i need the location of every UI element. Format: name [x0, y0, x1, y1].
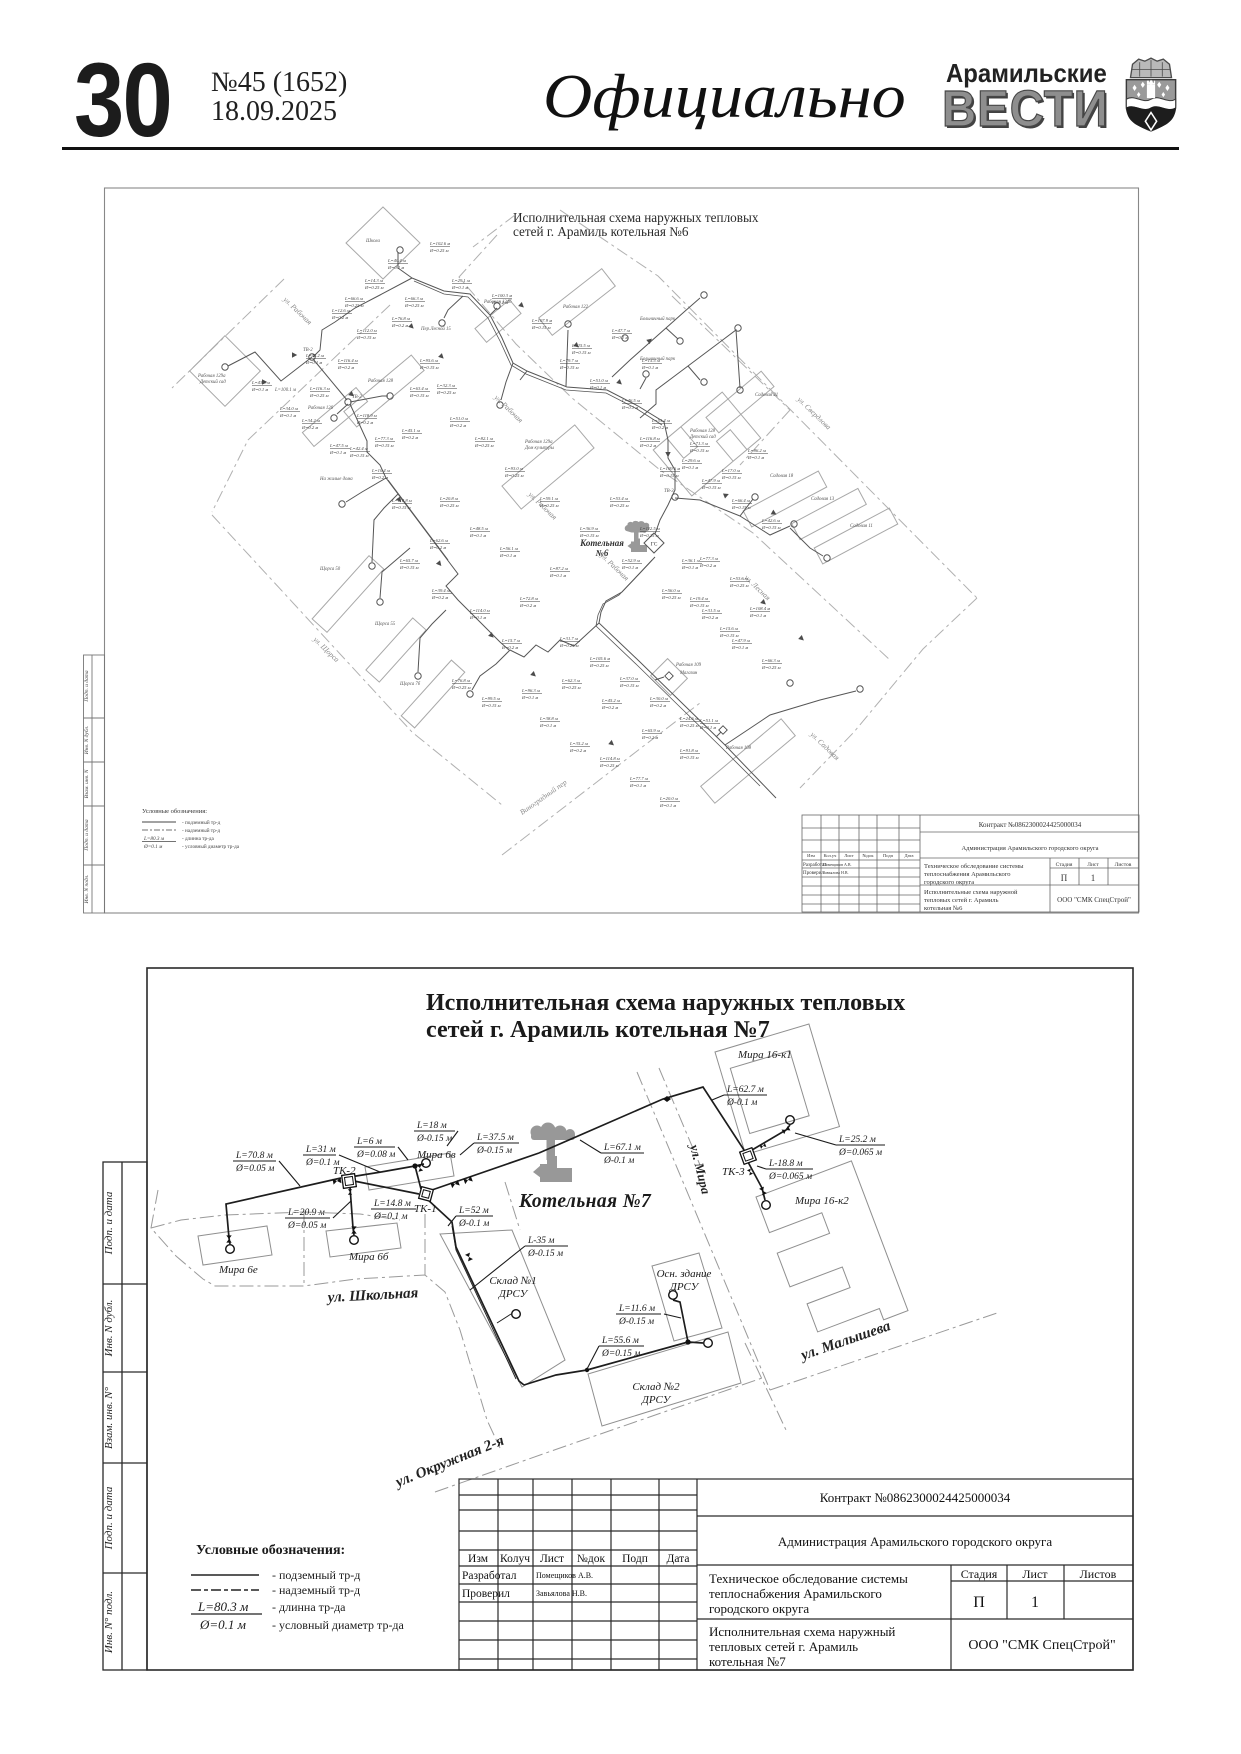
svg-text:Изм: Изм	[807, 853, 815, 858]
svg-text:Ø=0.2 м: Ø=0.2 м	[699, 563, 716, 568]
svg-text:L=77.3 м: L=77.3 м	[374, 436, 393, 441]
svg-text:L=48.5 м: L=48.5 м	[469, 526, 488, 531]
svg-text:L=36.9 м: L=36.9 м	[579, 526, 598, 531]
svg-text:L=99.5 м: L=99.5 м	[481, 696, 500, 701]
svg-text:Инв. N подл.: Инв. N подл.	[83, 875, 90, 905]
svg-text:L=14.3 м: L=14.3 м	[364, 278, 383, 283]
svg-text:котельная №7: котельная №7	[709, 1654, 786, 1669]
svg-text:- условный диаметр тр-да: - условный диаметр тр-да	[272, 1618, 405, 1632]
svg-text:Ø=0.15 м: Ø=0.15 м	[721, 475, 741, 480]
svg-text:L=34.0 м: L=34.0 м	[279, 406, 298, 411]
svg-text:Ø=0.25 м: Ø=0.25 м	[639, 533, 659, 538]
svg-text:Ø=0.25 м: Ø=0.25 м	[609, 503, 629, 508]
svg-text:ТК-2: ТК-2	[333, 1165, 356, 1177]
svg-text:Ø=0.15 м: Ø=0.15 м	[579, 533, 599, 538]
svg-text:Ø=0.15 м: Ø=0.15 м	[601, 1349, 640, 1359]
svg-text:Исполнительная схема наружных: Исполнительная схема наружных тепловых	[426, 990, 905, 1016]
svg-text:L=40.4 м: L=40.4 м	[387, 258, 406, 263]
svg-text:ул. Рабочая: ул. Рабочая	[492, 392, 525, 425]
svg-text:L-35 м: L-35 м	[527, 1236, 554, 1246]
svg-text:Ø=0.2 м: Ø=0.2 м	[651, 425, 668, 430]
svg-text:Ø=0.1 м: Ø=0.1 м	[451, 285, 468, 290]
svg-text:Помещиков А.В.: Помещиков А.В.	[536, 1571, 593, 1580]
svg-text:Ø=0.15 м: Ø=0.15 м	[531, 325, 551, 330]
svg-text:тепловых сетей г. Арамиль: тепловых сетей г. Арамиль	[709, 1639, 858, 1654]
svg-text:Котельная: Котельная	[579, 538, 624, 548]
svg-text:Ø=0.1 м: Ø=0.1 м	[629, 783, 646, 788]
svg-text:L=52 м: L=52 м	[458, 1206, 489, 1216]
svg-text:ТВ-3: ТВ-3	[664, 489, 674, 494]
svg-text:Ø=0.2 м: Ø=0.2 м	[641, 735, 658, 740]
svg-text:L=87.2 м: L=87.2 м	[549, 566, 568, 571]
svg-text:L=10.4 м: L=10.4 м	[371, 468, 390, 473]
svg-text:Ø=0.15 м: Ø=0.15 м	[399, 565, 419, 570]
svg-text:Ø=0.1 м: Ø=0.1 м	[305, 360, 322, 365]
svg-text:ТВ-2: ТВ-2	[352, 395, 362, 400]
svg-text:Изм: Изм	[468, 1553, 489, 1565]
svg-text:Рабочая 124б: Рабочая 124б	[483, 300, 512, 305]
svg-text:Помещиков А.В.: Помещиков А.В.	[823, 862, 852, 867]
svg-text:Детский сад: Детский сад	[199, 379, 226, 385]
svg-text:L=51.4 м: L=51.4 м	[651, 418, 670, 423]
svg-text:Ø=0.2 м: Ø=0.2 м	[501, 645, 518, 650]
svg-text:L=12.6 м: L=12.6 м	[331, 308, 350, 313]
svg-text:Лист: Лист	[844, 853, 853, 858]
svg-text:Ø=0.15 м: Ø=0.15 м	[391, 505, 411, 510]
svg-text:Осн. здание: Осн. здание	[657, 1268, 712, 1280]
svg-text:L=72.8 м: L=72.8 м	[519, 596, 538, 601]
svg-text:- надземный тр-д: - надземный тр-д	[272, 1583, 360, 1597]
svg-text:№док: №док	[577, 1553, 606, 1565]
svg-text:Ø=0.1 м: Ø=0.1 м	[699, 725, 716, 730]
svg-text:L=95.6 м: L=95.6 м	[419, 358, 438, 363]
svg-text:сетей г. Арамиль котельная №7: сетей г. Арамиль котельная №7	[426, 1017, 770, 1043]
svg-text:Ø=0.25 м: Ø=0.25 м	[344, 303, 364, 308]
svg-text:L=11.6 м: L=11.6 м	[618, 1304, 655, 1314]
svg-text:Проверил: Проверил	[462, 1588, 510, 1600]
svg-text:Листов: Листов	[1115, 862, 1132, 868]
svg-text:Ø=0.25 м: Ø=0.25 м	[589, 663, 609, 668]
svg-text:Ø=0.15 м: Ø=0.15 м	[374, 443, 394, 448]
svg-text:L=112.0 м: L=112.0 м	[356, 328, 377, 333]
svg-text:ТК-3: ТК-3	[722, 1166, 745, 1178]
svg-text:Ø=0.2 м: Ø=0.2 м	[429, 545, 446, 550]
svg-text:- подземный тр-д: - подземный тр-д	[182, 819, 221, 826]
svg-text:Инв. N дубл.: Инв. N дубл.	[103, 1300, 115, 1358]
svg-text:Мира 16-к1: Мира 16-к1	[737, 1049, 792, 1061]
svg-text:L=118.9 м: L=118.9 м	[356, 413, 377, 418]
svg-text:ТК-1: ТК-1	[414, 1203, 437, 1215]
svg-text:Ø=0.1 м: Ø=0.1 м	[641, 365, 658, 370]
svg-text:Виноградный пер: Виноградный пер	[518, 777, 569, 816]
svg-text:Ø=0.1 м: Ø=0.1 м	[549, 573, 566, 578]
svg-text:Ø=0.2 м: Ø=0.2 м	[356, 420, 373, 425]
svg-text:П: П	[973, 1594, 985, 1611]
svg-text:Ø=0.25 м: Ø=0.25 м	[539, 503, 559, 508]
svg-text:L=70.8 м: L=70.8 м	[235, 1151, 273, 1161]
svg-text:Ø=0.1 м: Ø=0.1 м	[387, 265, 404, 270]
svg-text:Ø=0.15 м: Ø=0.15 м	[689, 448, 709, 453]
svg-text:Рабочая 128: Рабочая 128	[367, 379, 394, 384]
svg-text:Мира 6в: Мира 6в	[416, 1149, 456, 1161]
svg-text:L-18.8 м: L-18.8 м	[768, 1159, 803, 1169]
svg-text:Контракт №0862300024425000034: Контракт №0862300024425000034	[820, 1490, 1011, 1505]
svg-text:Рабочая 122: Рабочая 122	[562, 305, 589, 310]
svg-text:Ø=0.15 м: Ø=0.15 м	[481, 703, 501, 708]
svg-text:Ø=0.1 м: Ø=0.1 м	[621, 565, 638, 570]
svg-text:Ø=0.2 м: Ø=0.2 м	[371, 475, 388, 480]
svg-text:Рабочая 129а: Рабочая 129а	[197, 374, 226, 379]
svg-text:L=66.4 м: L=66.4 м	[731, 498, 750, 503]
svg-text:L=105.6 м: L=105.6 м	[589, 656, 610, 661]
svg-text:Садовая 18: Садовая 18	[770, 474, 794, 479]
svg-text:Лист: Лист	[540, 1553, 564, 1565]
svg-text:Ø=0.1 м: Ø=0.1 м	[373, 1212, 408, 1222]
svg-text:Ø=0.15 м: Ø=0.15 м	[679, 755, 699, 760]
svg-text:Ø=0.1 м: Ø=0.1 м	[589, 385, 606, 390]
svg-text:Подп: Подп	[622, 1553, 648, 1565]
svg-text:Ø=0.1 м: Ø=0.1 м	[731, 645, 748, 650]
svg-text:Ø=0.25 м: Ø=0.25 м	[429, 248, 449, 253]
svg-text:Ø=0.1 м: Ø=0.1 м	[469, 533, 486, 538]
svg-text:- подземный тр-д: - подземный тр-д	[272, 1568, 360, 1582]
svg-text:L=59.1 м: L=59.1 м	[539, 496, 558, 501]
svg-text:Лист: Лист	[1022, 1567, 1048, 1581]
svg-text:Ø=0.25 м: Ø=0.25 м	[599, 763, 619, 768]
svg-text:Ø=0.1 м: Ø=0.1 м	[469, 615, 486, 620]
svg-text:ул. Мира: ул. Мира	[687, 1141, 714, 1196]
svg-text:Ø=0.05 м: Ø=0.05 м	[287, 1221, 326, 1231]
svg-text:Ø=0.2 м: Ø=0.2 м	[449, 423, 466, 428]
svg-text:L=14.8 м: L=14.8 м	[373, 1199, 411, 1209]
svg-text:L=108.4 м: L=108.4 м	[749, 606, 770, 611]
svg-text:Ø=0.2 м: Ø=0.2 м	[569, 748, 586, 753]
svg-text:Ø=0.15 м: Ø=0.15 м	[571, 350, 591, 355]
svg-text:Листов: Листов	[1080, 1567, 1117, 1581]
svg-text:L=20.9 м: L=20.9 м	[287, 1208, 325, 1218]
svg-text:Ø=0.15 м: Ø=0.15 м	[409, 393, 429, 398]
svg-text:Рабочая 109: Рабочая 109	[675, 663, 702, 668]
svg-text:Условные обозначения:: Условные обозначения:	[142, 808, 207, 815]
svg-text:ООО "СМК СпецСтрой": ООО "СМК СпецСтрой"	[968, 1638, 1115, 1653]
svg-text:Ø-0.15 м: Ø-0.15 м	[416, 1134, 452, 1144]
svg-text:- длинна тр-да: - длинна тр-да	[272, 1600, 346, 1614]
svg-text:Ø=0.15 м: Ø=0.15 м	[659, 473, 679, 478]
svg-text:L=96.3 м: L=96.3 м	[521, 688, 540, 693]
svg-text:L=86.2 м: L=86.2 м	[747, 448, 766, 453]
svg-text:Администрация Арамильского гор: Администрация Арамильского городского ок…	[778, 1534, 1052, 1549]
svg-text:L=25.5 м: L=25.5 м	[571, 343, 590, 348]
svg-text:Ø=0.1 м: Ø=0.1 м	[143, 844, 163, 850]
svg-text:Взам. инв. N: Взам. инв. N	[84, 769, 90, 798]
svg-text:Ø=0.25 м: Ø=0.25 м	[679, 723, 699, 728]
svg-text:ул. Окружная 2-я: ул. Окружная 2-я	[392, 1433, 507, 1492]
svg-text:Взам. инв. N°: Взам. инв. N°	[103, 1386, 115, 1449]
svg-text:ул. Рабочая: ул. Рабочая	[281, 294, 314, 327]
svg-text:ДРСУ: ДРСУ	[641, 1394, 672, 1406]
svg-text:L=35.2 м: L=35.2 м	[569, 741, 588, 746]
svg-text:городского округа: городского округа	[709, 1601, 809, 1616]
svg-text:Ø=0.15 м: Ø=0.15 м	[761, 525, 781, 530]
svg-text:Колуч: Колуч	[500, 1553, 530, 1565]
svg-text:L=63.4 м: L=63.4 м	[409, 386, 428, 391]
svg-text:П: П	[1061, 873, 1068, 883]
svg-text:L=80.3 м: L=80.3 м	[197, 1599, 248, 1614]
svg-text:L=24.6 м: L=24.6 м	[679, 716, 698, 721]
svg-text:Стадия: Стадия	[961, 1567, 998, 1581]
svg-text:Инв. N° подл.: Инв. N° подл.	[103, 1591, 115, 1654]
svg-text:Инв. N дубл.: Инв. N дубл.	[83, 726, 90, 755]
svg-text:L=42.6 м: L=42.6 м	[761, 518, 780, 523]
svg-text:Ø=0.25 м: Ø=0.25 м	[474, 443, 494, 448]
svg-text:L=20.0 м: L=20.0 м	[659, 796, 678, 801]
svg-text:Завьялова Н.В.: Завьялова Н.В.	[823, 870, 849, 875]
svg-text:Ø=0.15 м: Ø=0.15 м	[356, 335, 376, 340]
svg-text:1: 1	[1091, 873, 1096, 883]
svg-text:L=100.1 м: L=100.1 м	[274, 388, 296, 393]
svg-text:Администрация Арамильского гор: Администрация Арамильского городского ок…	[961, 845, 1098, 852]
svg-text:Проверил: Проверил	[803, 871, 824, 876]
svg-text:L=31.7 м: L=31.7 м	[559, 636, 578, 641]
svg-text:L=30.0 м: L=30.0 м	[649, 696, 668, 701]
svg-text:Ø=0.1 м: Ø=0.1 м	[251, 387, 268, 392]
svg-text:Ø=0.065 м: Ø=0.065 м	[838, 1148, 882, 1158]
svg-text:сетей г. Арамиль котельная №6: сетей г. Арамиль котельная №6	[513, 224, 689, 239]
svg-text:Техническое обследование систе: Техническое обследование системы	[924, 863, 1024, 870]
svg-text:L=116.8 м: L=116.8 м	[639, 436, 660, 441]
svg-text:L=116.4 м: L=116.4 м	[337, 358, 358, 363]
svg-text:ГС: ГС	[651, 542, 658, 548]
svg-text:Исполнительные схема наружной: Исполнительные схема наружной	[924, 889, 1018, 896]
svg-text:Ø=0.1 м: Ø=0.1 м	[681, 465, 698, 470]
svg-text:Контракт №0862300024425000034: Контракт №0862300024425000034	[979, 821, 1082, 829]
svg-text:L=112.5 м: L=112.5 м	[639, 526, 660, 531]
svg-text:L=52.9 м: L=52.9 м	[621, 558, 640, 563]
svg-text:L=6 м: L=6 м	[356, 1137, 382, 1147]
svg-text:L=37.5 м: L=37.5 м	[476, 1133, 514, 1143]
svg-text:L=25.2 м: L=25.2 м	[838, 1135, 876, 1145]
svg-text:Техническое обследование систе: Техническое обследование системы	[709, 1571, 908, 1586]
svg-text:Больничный парк: Больничный парк	[639, 316, 676, 322]
svg-text:Рабочая 129а: Рабочая 129а	[524, 440, 553, 445]
svg-text:L=56.0 м: L=56.0 м	[661, 588, 680, 593]
svg-text:Ø=0.2 м: Ø=0.2 м	[601, 705, 618, 710]
svg-text:L=43.3 м: L=43.3 м	[251, 380, 270, 385]
svg-text:L=15.6 м: L=15.6 м	[719, 626, 738, 631]
svg-text:L=53.4 м: L=53.4 м	[609, 496, 628, 501]
svg-text:теплоснабжения Арамильского: теплоснабжения Арамильского	[924, 871, 1010, 878]
svg-text:Пер.Лесной 15: Пер.Лесной 15	[420, 326, 451, 332]
svg-text:Ø=0.1 м: Ø=0.1 м	[521, 695, 538, 700]
svg-text:L=47.9 м: L=47.9 м	[731, 638, 750, 643]
svg-text:Ø-0.1 м: Ø-0.1 м	[726, 1098, 757, 1108]
svg-text:L=55.6 м: L=55.6 м	[601, 1336, 639, 1346]
svg-text:L=56.1 м: L=56.1 м	[499, 546, 518, 551]
svg-text:Ø=0.25 м: Ø=0.25 м	[561, 685, 581, 690]
svg-text:котельная №6: котельная №6	[924, 905, 963, 912]
svg-text:Больничный парк: Больничный парк	[639, 356, 676, 362]
svg-text:Ø=0.15 м: Ø=0.15 м	[731, 505, 751, 510]
svg-text:ДРСУ: ДРСУ	[498, 1288, 529, 1300]
svg-text:городского округа: городского округа	[924, 879, 974, 886]
svg-text:L=45.2 м: L=45.2 м	[305, 353, 324, 358]
svg-text:Ø=0.25 м: Ø=0.25 м	[436, 390, 456, 395]
svg-text:Подп. и дата: Подп. и дата	[103, 1191, 115, 1255]
svg-text:Школа: Школа	[365, 239, 380, 244]
svg-text:Ø=0.065 м: Ø=0.065 м	[768, 1172, 812, 1182]
svg-text:L=32.3 м: L=32.3 м	[436, 383, 455, 388]
svg-text:Ø=0.2 м: Ø=0.2 м	[431, 595, 448, 600]
svg-text:1: 1	[1031, 1594, 1039, 1611]
svg-text:Ø=0.1 м: Ø=0.1 м	[749, 613, 766, 618]
svg-text:Ø=0.25 м: Ø=0.25 м	[309, 393, 329, 398]
svg-text:L=62.7 м: L=62.7 м	[726, 1085, 764, 1095]
svg-text:Ø=0.2 м: Ø=0.2 м	[337, 365, 354, 370]
svg-text:Ø=0.15 м: Ø=0.15 м	[719, 633, 739, 638]
svg-text:Ø=0.2 м: Ø=0.2 м	[701, 615, 718, 620]
svg-text:Садовая 21: Садовая 21	[755, 393, 778, 398]
svg-text:L=79.7 м: L=79.7 м	[559, 358, 578, 363]
svg-text:L=51.0 м: L=51.0 м	[589, 378, 608, 383]
svg-text:L=114.8 м: L=114.8 м	[599, 756, 620, 761]
svg-text:ул. Малышева: ул. Малышева	[797, 1318, 893, 1364]
svg-text:Ø=0.25 м: Ø=0.25 м	[364, 285, 384, 290]
svg-text:Ø=0.15 м: Ø=0.15 м	[419, 365, 439, 370]
svg-text:L=65.7 м: L=65.7 м	[399, 558, 418, 563]
svg-text:L=47.9 м: L=47.9 м	[701, 478, 720, 483]
svg-text:Исполнительная схема наружных: Исполнительная схема наружных тепловых	[513, 210, 759, 225]
svg-text:L=66.3 м: L=66.3 м	[761, 658, 780, 663]
svg-text:Ø=0.25 м: Ø=0.25 м	[729, 583, 749, 588]
svg-text:L=109.6 м: L=109.6 м	[659, 466, 680, 471]
svg-text:Ø=0.15 м: Ø=0.15 м	[619, 683, 639, 688]
svg-text:На жилые дома: На жилые дома	[319, 477, 353, 482]
svg-text:- длинна тр-да: - длинна тр-да	[182, 836, 214, 842]
svg-text:Детский сад: Детский сад	[689, 434, 716, 440]
svg-text:L=107.9 м: L=107.9 м	[531, 318, 552, 323]
svg-text:ул. Свердлова: ул. Свердлова	[795, 394, 833, 431]
svg-text:Ø=0.1 м: Ø=0.1 м	[621, 405, 638, 410]
svg-text:Ø=0.1 м: Ø=0.1 м	[747, 455, 764, 460]
svg-text:ООО "СМК СпецСтрой": ООО "СМК СпецСтрой"	[1057, 896, 1131, 904]
svg-text:Ø=0.25 м: Ø=0.25 м	[761, 665, 781, 670]
svg-text:Подп. и дата: Подп. и дата	[83, 819, 90, 852]
svg-text:Ø=0.1 м: Ø=0.1 м	[329, 450, 346, 455]
svg-text:- условный диаметр тр-да: - условный диаметр тр-да	[182, 843, 240, 850]
svg-text:L=67.1 м: L=67.1 м	[603, 1143, 641, 1153]
svg-text:L=77.7 м: L=77.7 м	[629, 776, 648, 781]
svg-text:Разработал: Разработал	[462, 1570, 517, 1582]
svg-text:Условные обозначения:: Условные обозначения:	[196, 1543, 345, 1558]
svg-text:L=93.0 м: L=93.0 м	[504, 466, 523, 471]
svg-text:Мира 6е: Мира 6е	[218, 1264, 258, 1276]
svg-text:Рабочая 128: Рабочая 128	[689, 429, 716, 434]
svg-text:Магазин: Магазин	[679, 671, 698, 676]
svg-text:L=71.3 м: L=71.3 м	[689, 441, 708, 446]
svg-text:теплоснабжения Арамильского: теплоснабжения Арамильского	[709, 1586, 882, 1601]
svg-text:L=31.5 м: L=31.5 м	[701, 608, 720, 613]
svg-text:Ø-0.15 м: Ø-0.15 м	[476, 1146, 512, 1156]
svg-text:Ø=0.2 м: Ø=0.2 м	[519, 603, 536, 608]
svg-text:Садовая 13: Садовая 13	[811, 497, 835, 502]
svg-text:Ø=0.2 м: Ø=0.2 м	[401, 435, 418, 440]
svg-text:№док: №док	[862, 853, 874, 858]
svg-text:L=19.4 м: L=19.4 м	[689, 596, 708, 601]
svg-text:ул. Садовая: ул. Садовая	[808, 729, 842, 762]
svg-text:Рабочая 108: Рабочая 108	[725, 746, 752, 751]
svg-text:Ø=0.05 м: Ø=0.05 м	[235, 1164, 274, 1174]
svg-text:Ø=0.1 м: Ø=0.1 м	[659, 803, 676, 808]
svg-text:Ø=0.1 м: Ø=0.1 м	[539, 723, 556, 728]
svg-text:Подп. и дата: Подп. и дата	[83, 670, 90, 703]
svg-text:L=51.1 м: L=51.1 м	[699, 718, 718, 723]
svg-text:L=31 м: L=31 м	[305, 1145, 336, 1155]
svg-text:ДРСУ: ДРСУ	[669, 1281, 700, 1293]
svg-text:ТВ-2: ТВ-2	[303, 348, 313, 353]
svg-text:L=100.3 м: L=100.3 м	[491, 293, 512, 298]
svg-text:Ø=0.2 м: Ø=0.2 м	[639, 443, 656, 448]
svg-text:Дата: Дата	[905, 853, 914, 858]
svg-text:L=65.9 м: L=65.9 м	[641, 728, 660, 733]
svg-text:L=114.0 м: L=114.0 м	[469, 608, 490, 613]
svg-text:L=66.6 м: L=66.6 м	[344, 296, 363, 301]
svg-text:L=118.8 м: L=118.8 м	[391, 498, 412, 503]
svg-text:L=82.1 м: L=82.1 м	[474, 436, 493, 441]
svg-text:Ø=0.25 м: Ø=0.25 м	[439, 503, 459, 508]
svg-text:Ø=0.2 м: Ø=0.2 м	[301, 425, 318, 430]
svg-text:Ø=0.25 м: Ø=0.25 м	[404, 303, 424, 308]
svg-text:L=39.4 м: L=39.4 м	[431, 588, 450, 593]
svg-text:L=38.8 м: L=38.8 м	[539, 716, 558, 721]
svg-text:Завьялова Н.В.: Завьялова Н.В.	[536, 1589, 587, 1598]
svg-text:L=80.3 м: L=80.3 м	[143, 836, 165, 842]
svg-text:L=15.7 м: L=15.7 м	[501, 638, 520, 643]
svg-text:L=91.8 м: L=91.8 м	[679, 748, 698, 753]
svg-text:Ø=0.2 м: Ø=0.2 м	[649, 703, 666, 708]
svg-text:Садовая 11: Садовая 11	[850, 524, 873, 529]
svg-text:Ø=0.25 м: Ø=0.25 м	[451, 685, 471, 690]
svg-text:Дом культуры: Дом культуры	[524, 446, 555, 451]
svg-text:L=76.8 м: L=76.8 м	[451, 678, 470, 683]
svg-text:Ø=0.15 м: Ø=0.15 м	[349, 453, 369, 458]
svg-text:ул. Школьная: ул. Школьная	[325, 1285, 419, 1306]
svg-text:Ø=0.1 м: Ø=0.1 м	[681, 565, 698, 570]
svg-text:Ø-0.15 м: Ø-0.15 м	[527, 1249, 563, 1259]
svg-text:L=34.2 м: L=34.2 м	[301, 418, 320, 423]
svg-text:Ø=0.25 м: Ø=0.25 м	[661, 595, 681, 600]
svg-text:Ø=0.1 м: Ø=0.1 м	[611, 335, 628, 340]
svg-text:Рабочая 126: Рабочая 126	[307, 406, 334, 411]
svg-text:Ø=0.15 м: Ø=0.15 м	[689, 603, 709, 608]
svg-text:L=66.3 м: L=66.3 м	[404, 296, 423, 301]
svg-text:L=76.8 м: L=76.8 м	[391, 316, 410, 321]
svg-text:Дата: Дата	[667, 1553, 690, 1565]
svg-text:Ø=0.15 м: Ø=0.15 м	[559, 365, 579, 370]
svg-text:Ø=0.25 м: Ø=0.25 м	[504, 473, 524, 478]
svg-text:L=37.0 м: L=37.0 м	[619, 676, 638, 681]
svg-text:Мира 16-к2: Мира 16-к2	[794, 1195, 849, 1207]
svg-text:L=102.6 м: L=102.6 м	[429, 241, 450, 246]
svg-text:Щорса 7б: Щорса 7б	[399, 682, 421, 687]
svg-text:Лист: Лист	[1087, 862, 1099, 868]
svg-text:Щорса 55: Щорса 55	[374, 622, 396, 627]
svg-text:L=77.3 м: L=77.3 м	[699, 556, 718, 561]
svg-text:Ø=0.08 м: Ø=0.08 м	[356, 1150, 395, 1160]
svg-text:L=36.1 м: L=36.1 м	[681, 558, 700, 563]
svg-text:Ø=0.2 м: Ø=0.2 м	[331, 315, 348, 320]
svg-text:L=29.6 м: L=29.6 м	[681, 458, 700, 463]
svg-text:L=42.4 м: L=42.4 м	[349, 446, 368, 451]
